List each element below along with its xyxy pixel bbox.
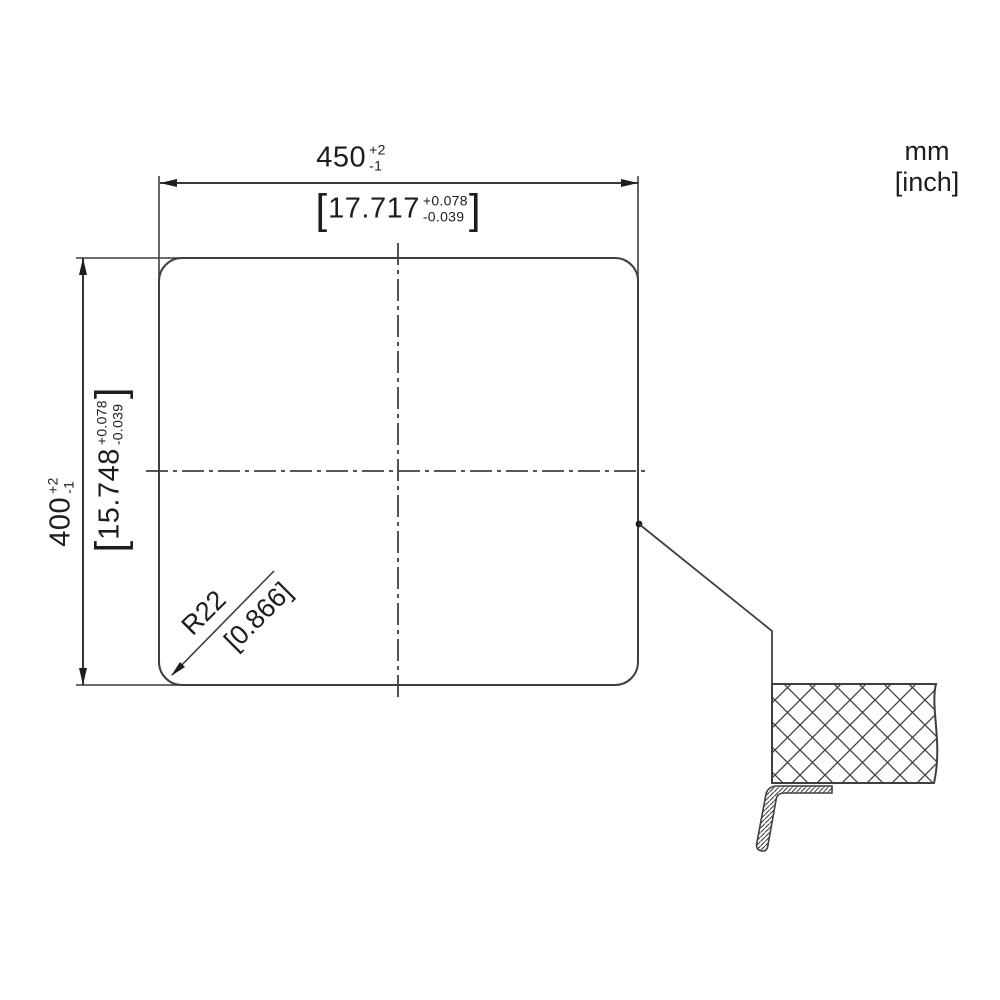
width-mm-tolerance: +2 -1 <box>369 143 386 174</box>
width-inch-tolerance: +0.078 -0.039 <box>423 194 468 225</box>
height-dim-mm: 400 +2 -1 <box>45 477 78 546</box>
arrowhead-down-icon <box>79 668 87 685</box>
arrowhead-right-icon <box>621 179 638 187</box>
units-inch-label: [inch] <box>895 167 960 198</box>
width-dim-mm: 450 +2 -1 <box>316 142 385 175</box>
bracket-open: [ <box>314 193 328 225</box>
width-dim-inch: [ 17.717 +0.078 -0.039 ] <box>314 193 481 226</box>
dimension-line-height <box>79 258 87 685</box>
sink-flange-profile <box>757 786 832 851</box>
bracket-close: ] <box>94 386 126 400</box>
width-mm-value: 450 <box>316 142 366 175</box>
arrowhead-up-icon <box>79 258 87 275</box>
height-mm-tolerance: +2 -1 <box>46 477 77 494</box>
height-dim-inch: [ 15.748 +0.078 -0.039 ] <box>94 386 127 553</box>
height-inch-tolerance: +0.078 -0.039 <box>95 400 126 445</box>
width-inch-value: 17.717 <box>328 193 420 226</box>
arrowhead-left-icon <box>160 179 177 187</box>
countertop-section <box>772 684 937 783</box>
technical-drawing: mm [inch] 450 +2 -1 [ 17.717 +0.078 -0.0… <box>0 0 1000 1000</box>
extension-lines <box>76 176 638 685</box>
units-note: mm [inch] <box>895 136 960 198</box>
units-mm-label: mm <box>895 136 960 167</box>
height-mm-value: 400 <box>45 497 78 547</box>
bracket-open: [ <box>94 540 126 554</box>
bracket-close: ] <box>468 193 482 225</box>
section-leader <box>636 521 772 684</box>
dimension-line-width <box>160 179 638 187</box>
drawing-linework <box>0 0 1000 1000</box>
height-inch-value: 15.748 <box>94 448 127 540</box>
